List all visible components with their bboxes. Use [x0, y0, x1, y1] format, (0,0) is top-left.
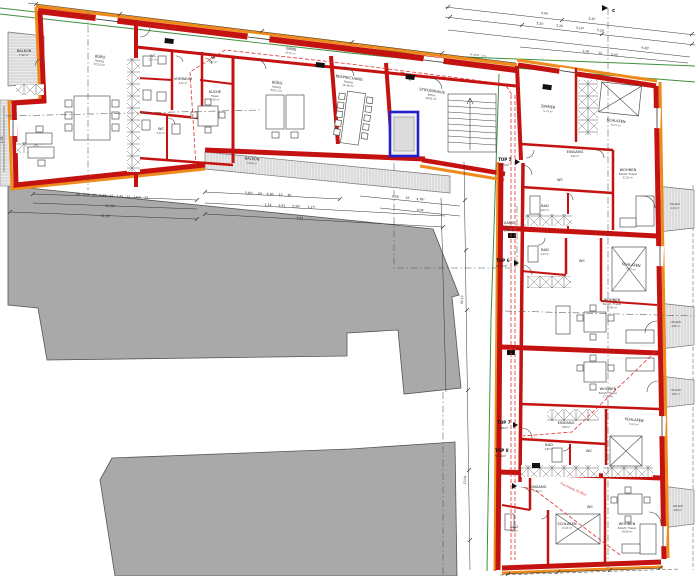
room-t6-balkon-area: 4,86 m² — [671, 325, 680, 328]
room-t8-eingang-name: EINGANG — [530, 485, 547, 489]
room-wc1-name: WC — [150, 54, 157, 58]
room-t7-wohnen-name: WOHNEN — [600, 387, 617, 391]
room-t7-bad-name: BAD — [545, 443, 553, 447]
shaft-top5 — [578, 80, 598, 135]
room-t8-wc-name: WC — [587, 505, 594, 509]
room-gang-wing-name: GANG — [504, 221, 515, 225]
room-ar-area: 1,42 m² — [208, 61, 217, 64]
dim-v-right2: 13,01 — [463, 475, 467, 484]
room-balkon-nw-area: 7,52 m² — [19, 53, 29, 57]
planter-strip-1 — [16, 84, 44, 95]
room-wc2-area: 2,11 m² — [156, 132, 165, 135]
wing-wall-left — [498, 163, 501, 570]
room-t5-bad-area: 4,60 m² — [540, 209, 549, 212]
room-t5-balkon-name: BALKON — [670, 203, 680, 206]
room-t8-schlafen-name: SCHLAFEN — [557, 522, 576, 526]
room-t7-eingang-area: 7,68 m² — [561, 426, 570, 429]
room-t5-wohnen-area: 32,55 m² — [623, 177, 634, 180]
room-t6-bad-area: 5,43 m² — [540, 253, 549, 256]
section-marker-label: c — [612, 8, 615, 14]
unit-top5-area: 71,29m² — [498, 163, 509, 167]
floor-plan-page: Fluchtweg 30,60m Fluchtweg 35,80m 4,40 5… — [0, 0, 695, 576]
room-t8-balkon-name: BALKON — [673, 505, 683, 508]
room-vorraum-area: 4,32 m² — [178, 82, 187, 85]
room-ar-name: AR — [211, 56, 216, 60]
unit-top7-label: TOP 7 — [497, 420, 511, 425]
room-t7-wc-name: WC — [586, 449, 593, 453]
room-t6-wc-name: WC — [579, 259, 586, 263]
room-t5-wohnen-name: WOHNEN — [620, 168, 637, 172]
unit-top6-area: 55,96m² — [496, 264, 507, 268]
dim-grayL2: 12,30² — [105, 204, 116, 209]
room-t5-wc-name: WC — [557, 178, 564, 182]
unit-top8-area: 54,39m² — [495, 454, 506, 458]
unit-top6-label: TOP 6 — [496, 258, 510, 263]
room-wc2-name: WC — [158, 127, 165, 131]
room-t7-balkon-name: BALKON — [671, 389, 681, 392]
room-vorraum-name: VORRAUM — [174, 77, 192, 81]
room-t6-bad-name: BAD — [541, 248, 549, 252]
room-t8-wohnen-name: WOHNEN — [619, 522, 636, 526]
room-t8-bad-area: 7,04 m² — [509, 530, 518, 533]
room-gang-wing-area: 63,47 m² — [504, 230, 515, 233]
room-kueche-area: 6,28 m² — [210, 99, 219, 102]
room-t5-eingang-area: 4,62 m² — [570, 155, 579, 158]
room-t8-schlafen-area: 13,13 m² — [562, 527, 573, 530]
room-t5-bad-name: BAD — [541, 204, 549, 208]
dim-grayM3: 9,41 — [297, 216, 304, 220]
room-t6-balkon-name: BALKON — [671, 321, 681, 324]
room-t7-eingang-name: EINGANG — [558, 421, 575, 425]
room-t7-bad-area: 4,80 m² — [544, 448, 553, 451]
room-t5-balkon-area: 4,20 m² — [670, 207, 679, 210]
room-t8-balkon-area: 4,86 m² — [673, 509, 682, 512]
unit-top5-label: TOP 5 — [498, 157, 512, 162]
room-t6-wohnen-name: WOHNEN — [604, 298, 621, 302]
room-kueche-name: KÜCHE — [209, 89, 222, 94]
dim-grayR2: 4,04 — [416, 208, 423, 213]
wall-tag — [532, 463, 540, 468]
kitchen-strip-boundary-2 — [603, 465, 653, 477]
unit-top7-area: 60,96m² — [497, 426, 508, 430]
room-t6-wohnen-area: 27,80 m² — [607, 307, 618, 310]
wardrobe-strip-top7 — [547, 409, 599, 421]
neighbor-building-lower — [100, 442, 457, 576]
room-wc1-area: 2,11 m² — [148, 59, 157, 62]
dim-v-right1: 30,13 — [460, 295, 464, 304]
installation-shaft — [127, 58, 140, 172]
kitchen-strip-top6 — [527, 276, 571, 288]
room-t8-eingang-area: 6,63 m² — [533, 490, 542, 493]
room-t5-eingang-name: EINGANG — [567, 150, 584, 154]
kitchen-strip-top5 — [524, 214, 572, 226]
room-t8-bad-name: BAD — [510, 525, 518, 529]
dim-grayL3: 11,36 — [101, 214, 110, 218]
dim-left-v: 1,06 — [0, 137, 4, 144]
room-balkon-nw-name: BALKON — [17, 49, 32, 53]
room-t7-wohnen-area: 27,80 m² — [603, 396, 614, 399]
elevator — [390, 112, 418, 156]
room-t7-balkon-area: 4,86 m² — [671, 393, 680, 396]
floor-plan-canvas: Fluchtweg 30,60m Fluchtweg 35,80m 4,40 5… — [0, 0, 695, 576]
unit-top8-label: TOP 8 — [495, 448, 509, 453]
room-t8-wohnen-area: 26,60 m² — [622, 531, 633, 534]
